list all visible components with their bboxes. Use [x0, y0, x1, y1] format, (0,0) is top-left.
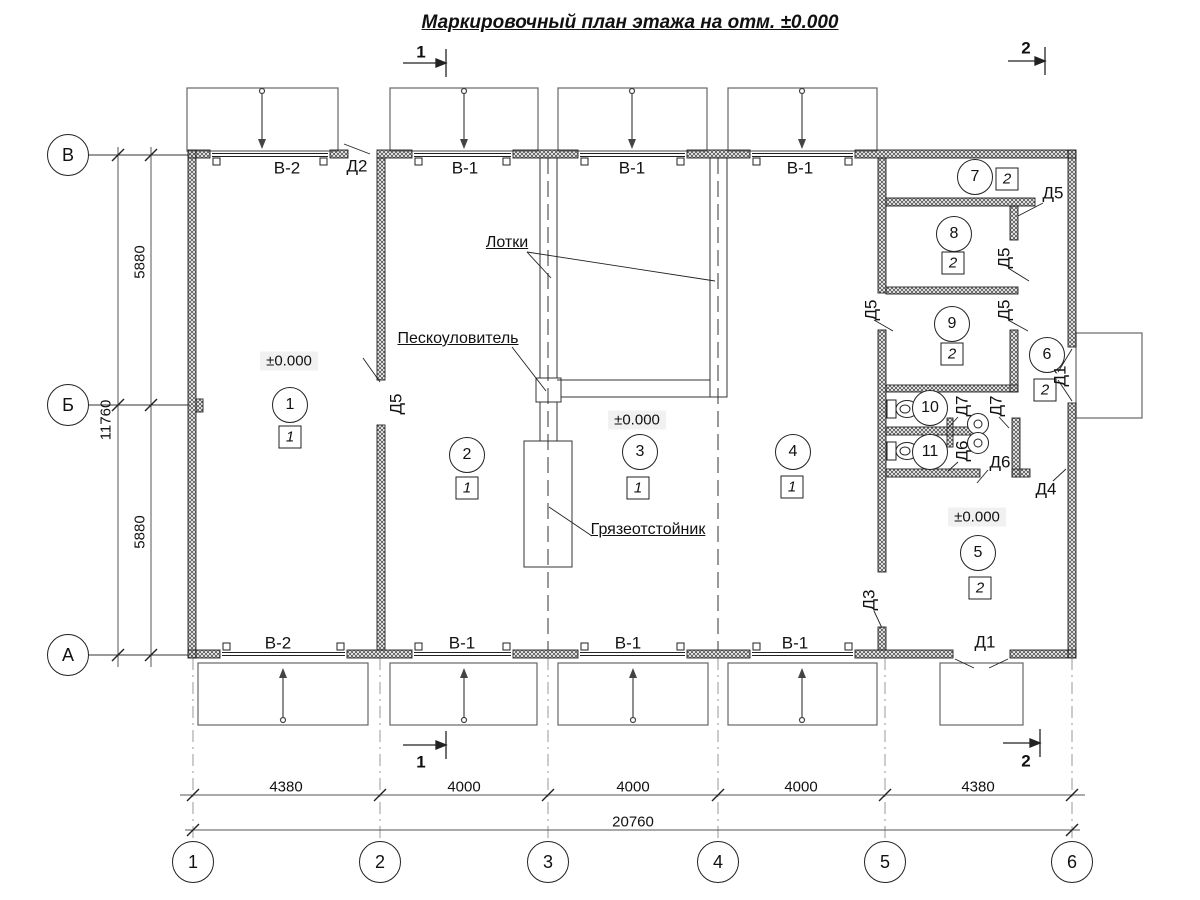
axis-bubble-row-v: В: [47, 134, 89, 176]
room-category-8: 2: [942, 252, 965, 275]
drawing-title: Маркировочный план этажа на отм. ±0.000: [422, 12, 839, 34]
room-number-7: 7: [957, 159, 993, 195]
annotation-mud-collector: Грязеотстойник: [591, 522, 706, 538]
room-number-5: 5: [960, 535, 996, 571]
door-label-d6-horizontal: Д6: [990, 454, 1011, 471]
drawing-geometry: [0, 0, 1200, 900]
elevation-mark-room3: ±0.000: [608, 411, 666, 430]
gate-label-v2-top: В-2: [274, 160, 300, 177]
door-label-d5-room9-left: Д5: [863, 300, 880, 321]
axis-bubble-col-4: 4: [697, 841, 739, 883]
elevation-mark-room5: ±0.000: [948, 508, 1006, 527]
dimension-lines: [112, 147, 1085, 836]
room-number-1: 1: [272, 387, 308, 423]
dim-bottom-3: 4000: [616, 780, 649, 795]
door-label-d5-room8: Д5: [996, 248, 1013, 269]
door-label-d1-right: Д1: [1052, 366, 1069, 387]
drain-channels: [524, 158, 727, 650]
section-mark-2-top: 2: [1021, 40, 1030, 57]
room-category-1: 1: [279, 426, 302, 449]
room-number-3: 3: [622, 434, 658, 470]
dim-bottom-1: 4380: [269, 780, 302, 795]
dim-bottom-2: 4000: [447, 780, 480, 795]
gate-label-v1-bottom-2: В-1: [615, 635, 641, 652]
gate-label-v1-top-3: В-1: [787, 160, 813, 177]
gate-label-v2-bottom: В-2: [265, 635, 291, 652]
annotation-trays: Лотки: [486, 235, 528, 251]
door-label-d5-room9-right: Д5: [996, 300, 1013, 321]
gate-leaves: [212, 154, 853, 656]
room-category-3: 1: [627, 477, 650, 500]
dim-left-lower: 5880: [133, 515, 148, 548]
room-category-5: 2: [969, 577, 992, 600]
gate-label-v1-top-1: В-1: [452, 160, 478, 177]
door-label-d7-left: Д7: [954, 396, 971, 417]
section-mark-2-bottom: 2: [1021, 753, 1030, 770]
dim-bottom-4: 4000: [784, 780, 817, 795]
room-number-10: 10: [912, 390, 948, 426]
room-number-9: 9: [934, 306, 970, 342]
door-label-d1-bottom: Д1: [975, 634, 996, 651]
annotation-sand-trap: Пескоуловитель: [398, 331, 519, 347]
dim-bottom-total: 20760: [612, 815, 654, 830]
axis-bubble-col-3: 3: [527, 841, 569, 883]
section-mark-1-top: 1: [416, 44, 425, 61]
door-label-d5-axis2: Д5: [388, 394, 405, 415]
gate-label-v1-top-2: В-1: [619, 160, 645, 177]
axis-bubble-col-2: 2: [359, 841, 401, 883]
dimension-ticks: [112, 149, 1078, 836]
dim-bottom-5: 4380: [961, 780, 994, 795]
door-label-d6-rotated: Д6: [954, 441, 971, 462]
axis-bubble-row-b: Б: [47, 384, 89, 426]
door-label-d3: Д3: [861, 590, 878, 611]
section-mark-1-bottom: 1: [416, 754, 425, 771]
axis-bubble-col-6: 6: [1051, 841, 1093, 883]
door-label-d4: Д4: [1036, 481, 1057, 498]
door-label-d2: Д2: [347, 158, 368, 175]
room-category-7: 2: [996, 168, 1019, 191]
room-number-2: 2: [449, 437, 485, 473]
dim-left-upper: 5880: [133, 245, 148, 278]
gate-direction-arrows: [258, 89, 806, 723]
dim-left-total: 11760: [99, 400, 114, 441]
door-label-d7-right: Д7: [988, 396, 1005, 417]
axis-bubble-row-a: А: [47, 634, 89, 676]
axis-bubble-col-1: 1: [172, 841, 214, 883]
elevation-mark-room1: ±0.000: [260, 352, 318, 371]
floor-plan-canvas: Маркировочный план этажа на отм. ±0.000 …: [0, 0, 1200, 900]
room-category-4: 1: [781, 476, 804, 499]
door-label-d5-room7: Д5: [1043, 185, 1064, 202]
gate-label-v1-bottom-3: В-1: [782, 635, 808, 652]
room-number-11: 11: [912, 434, 948, 470]
room-category-2: 1: [456, 477, 479, 500]
axis-lines: [88, 155, 1072, 843]
sink-icon: [968, 414, 989, 435]
axis-bubble-col-5: 5: [864, 841, 906, 883]
gate-label-v1-bottom-1: В-1: [449, 635, 475, 652]
room-number-4: 4: [775, 434, 811, 470]
room-category-9: 2: [941, 343, 964, 366]
room-number-8: 8: [936, 216, 972, 252]
